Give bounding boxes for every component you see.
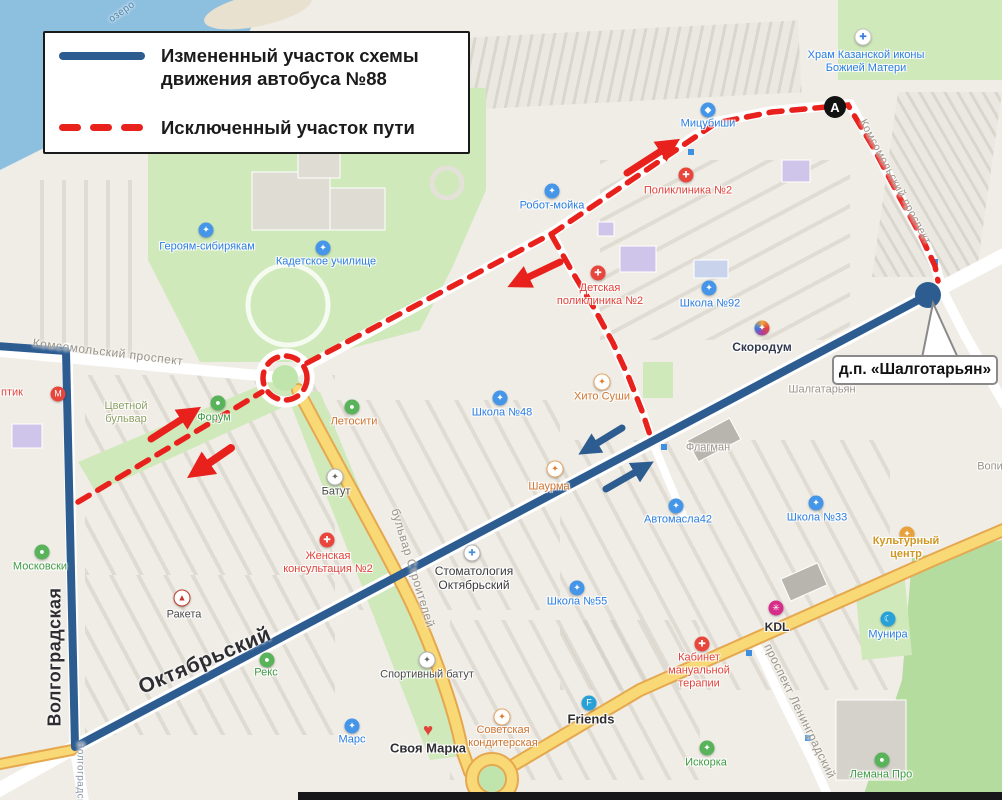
- legend-item-excluded: Исключенный участок пути: [59, 117, 454, 140]
- poi-label-svoya-marka[interactable]: Своя Марка: [390, 740, 466, 755]
- poi-icon-iskorka[interactable]: ✦: [700, 741, 715, 756]
- poi-label-shkola-48[interactable]: Школа №48: [472, 407, 533, 420]
- poi-label-skorodum[interactable]: Скородум: [732, 340, 792, 354]
- poi-icon-skorodum[interactable]: ✦: [755, 321, 770, 336]
- poi-icon-lemana-pro[interactable]: ●: [875, 753, 890, 768]
- street-label-oktyabrsky: Октябрьский: [135, 622, 275, 699]
- poi-label-mars[interactable]: Марс: [338, 734, 365, 747]
- poi-label-hram-kazanskoy-ikony[interactable]: Храм Казанской иконы Божией Матери: [808, 49, 925, 75]
- poi-icon-batut[interactable]: ✦: [327, 469, 344, 486]
- poi-label-iskorka[interactable]: Искорка: [685, 757, 727, 770]
- poi-icon-rex[interactable]: ●: [260, 653, 275, 668]
- poi-label-batut[interactable]: Батут: [322, 486, 351, 499]
- poi-icon-kadetskoe-uchilishche[interactable]: ✦: [316, 241, 331, 256]
- poi-icon-mitsubishi[interactable]: ◆: [701, 103, 716, 118]
- poi-label-moskovsky[interactable]: Московски: [13, 561, 67, 574]
- poi-label-shalgataryan[interactable]: Шалгатарьян: [788, 384, 855, 397]
- poi-icon-poliklinika-2[interactable]: ✚: [679, 168, 694, 183]
- poi-icon-sportivny-batut[interactable]: ✦: [419, 652, 436, 669]
- poi-label-lemana-pro[interactable]: Лемана Про: [850, 769, 912, 782]
- map-stage[interactable]: А ✚Храм Казанской иконы Божией Матери◆Ми…: [0, 0, 1002, 800]
- poi-icon-svoya-marka[interactable]: ♥: [421, 723, 436, 738]
- poi-icon-zhenskaya-konsultatsiya-2[interactable]: ✚: [320, 533, 335, 548]
- poi-label-hito-sushi[interactable]: Хито Суши: [574, 391, 630, 404]
- poi-icon-magnit[interactable]: М: [51, 387, 66, 402]
- poi-icon-hito-sushi[interactable]: ✦: [594, 374, 611, 391]
- poi-label-shkola-92[interactable]: Школа №92: [680, 298, 741, 311]
- poi-label-optika-partial[interactable]: птик: [1, 387, 23, 400]
- street-label-komsomolsky-prospekt-left: Комсомольский проспект: [32, 336, 184, 368]
- poi-icon-detskaya-poliklinika-2[interactable]: ✚: [591, 266, 606, 281]
- poi-icon-friends[interactable]: F: [582, 696, 597, 711]
- legend-label-changed: Измененный участок схемы движения автобу…: [161, 45, 454, 90]
- poi-label-kulturny-tsentr[interactable]: Культурный центр: [858, 535, 954, 561]
- poi-label-zhenskaya-konsultatsiya-2[interactable]: Женская консультация №2: [283, 550, 373, 576]
- poi-label-geroyam-sibiryakam[interactable]: Героям-сибирякам: [159, 241, 255, 254]
- poi-icon-raketa[interactable]: ▲: [174, 590, 191, 607]
- poi-icon-geroyam-sibiryakam[interactable]: ✦: [199, 223, 214, 238]
- legend-swatch-solid-blue: [59, 52, 145, 60]
- poi-icon-robot-moyka[interactable]: ✦: [545, 184, 560, 199]
- poi-icon-hram-kazanskoy-ikony[interactable]: ✚: [855, 29, 872, 46]
- poi-label-shaurma[interactable]: Шаурма: [528, 481, 569, 494]
- poi-icon-stomatologiya-oktyabrsky[interactable]: ✚: [464, 545, 481, 562]
- poi-label-letosity[interactable]: Летосити: [331, 416, 378, 429]
- poi-label-friends[interactable]: Friends: [568, 711, 615, 726]
- legend-label-excluded: Исключенный участок пути: [161, 117, 415, 140]
- poi-icon-kabinet-manualnoy-terapii[interactable]: ✚: [695, 637, 710, 652]
- poi-icon-shkola-33[interactable]: ✦: [809, 496, 824, 511]
- street-label-bulvar-stroiteley: бульвар Строителей: [388, 507, 438, 629]
- poi-label-sportivny-batut[interactable]: Спортивный батут: [380, 669, 474, 682]
- legend-item-changed: Измененный участок схемы движения автобу…: [59, 45, 454, 90]
- poi-label-tsvetnoy-bulvar[interactable]: Цветной бульвар: [105, 400, 148, 426]
- poi-label-munira[interactable]: Мунира: [868, 629, 907, 642]
- terminal-callout: д.п. «Шалготарьян»: [832, 355, 998, 385]
- poi-icon-shkola-92[interactable]: ✦: [702, 281, 717, 296]
- poi-label-avtomasla42[interactable]: Автомасла42: [644, 514, 712, 527]
- poi-label-kabinet-manualnoy-terapii[interactable]: Кабинет мануальной терапии: [668, 652, 730, 691]
- poi-icon-forum[interactable]: ●: [211, 396, 226, 411]
- poi-label-kadetskoe-uchilishche[interactable]: Кадетское училище: [276, 256, 376, 269]
- poi-label-detskaya-poliklinika-2[interactable]: Детская поликлиника №2: [557, 282, 643, 308]
- legend-box: Измененный участок схемы движения автобу…: [43, 31, 470, 154]
- poi-label-poliklinika-2[interactable]: Поликлиника №2: [644, 185, 732, 198]
- legend-swatch-dashed-red: [59, 124, 145, 131]
- poi-label-shkola-33[interactable]: Школа №33: [787, 512, 848, 525]
- street-label-komsomolsky-prospekt-right: Комсомольский проспект: [857, 117, 933, 246]
- poi-icon-shkola-48[interactable]: ✦: [493, 391, 508, 406]
- street-label-prospekt-leningradsky: проспект Ленинградский: [761, 641, 839, 780]
- poi-label-mitsubishi[interactable]: Мицубиши: [681, 118, 736, 131]
- poi-label-forum[interactable]: Форум: [197, 412, 230, 425]
- poi-icon-mars[interactable]: ✦: [345, 719, 360, 734]
- poi-label-vopi[interactable]: Вопи: [977, 461, 1002, 474]
- poi-label-stomatologiya-oktyabrsky[interactable]: Стоматология Октябрьский: [435, 564, 514, 592]
- poi-label-kdl[interactable]: KDL: [765, 620, 790, 634]
- poi-icon-sovetskaya-konditerskaya[interactable]: ✦: [494, 709, 511, 726]
- poi-label-rex[interactable]: Рекс: [254, 667, 277, 680]
- poi-icon-munira[interactable]: ☾: [881, 612, 896, 627]
- poi-icon-avtomasla42[interactable]: ✦: [669, 499, 684, 514]
- poi-icon-moskovsky[interactable]: ●: [35, 545, 50, 560]
- poi-icon-shaurma[interactable]: ✦: [547, 461, 564, 478]
- poi-icon-shkola-55[interactable]: ✦: [570, 581, 585, 596]
- poi-label-raketa[interactable]: Ракета: [167, 609, 202, 622]
- poi-label-robot-moyka[interactable]: Робот-мойка: [520, 200, 585, 213]
- poi-label-shkola-55[interactable]: Школа №55: [547, 596, 608, 609]
- poi-label-flagman[interactable]: Флагман: [686, 442, 730, 455]
- poi-icon-kdl[interactable]: ✳: [769, 601, 784, 616]
- poi-label-sovetskaya-konditerskaya[interactable]: Советская кондитерская: [468, 724, 537, 750]
- poi-icon-letosity[interactable]: ●: [345, 400, 360, 415]
- street-label-volgogradskaya: Волгоградская: [45, 588, 66, 727]
- street-label-volgogradskaya-small: Волгоградская: [75, 742, 86, 800]
- street-label-ozero: озеро: [107, 0, 137, 25]
